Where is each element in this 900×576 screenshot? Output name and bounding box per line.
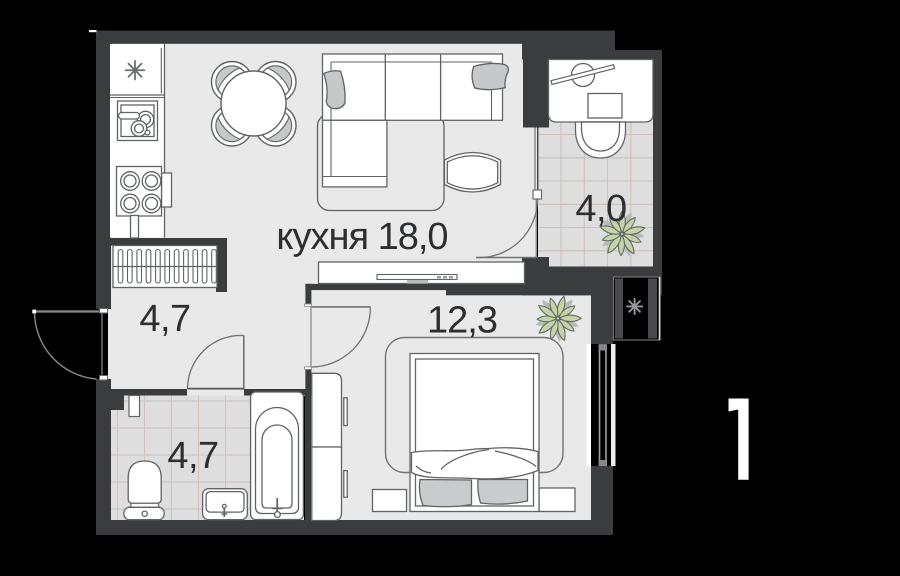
svg-text:4,7: 4,7 bbox=[139, 298, 190, 340]
svg-text:4,7: 4,7 bbox=[167, 435, 218, 477]
svg-text:кухня 18,0: кухня 18,0 bbox=[276, 216, 447, 258]
svg-text:4,0: 4,0 bbox=[575, 188, 626, 230]
svg-text:12,3: 12,3 bbox=[427, 300, 497, 342]
